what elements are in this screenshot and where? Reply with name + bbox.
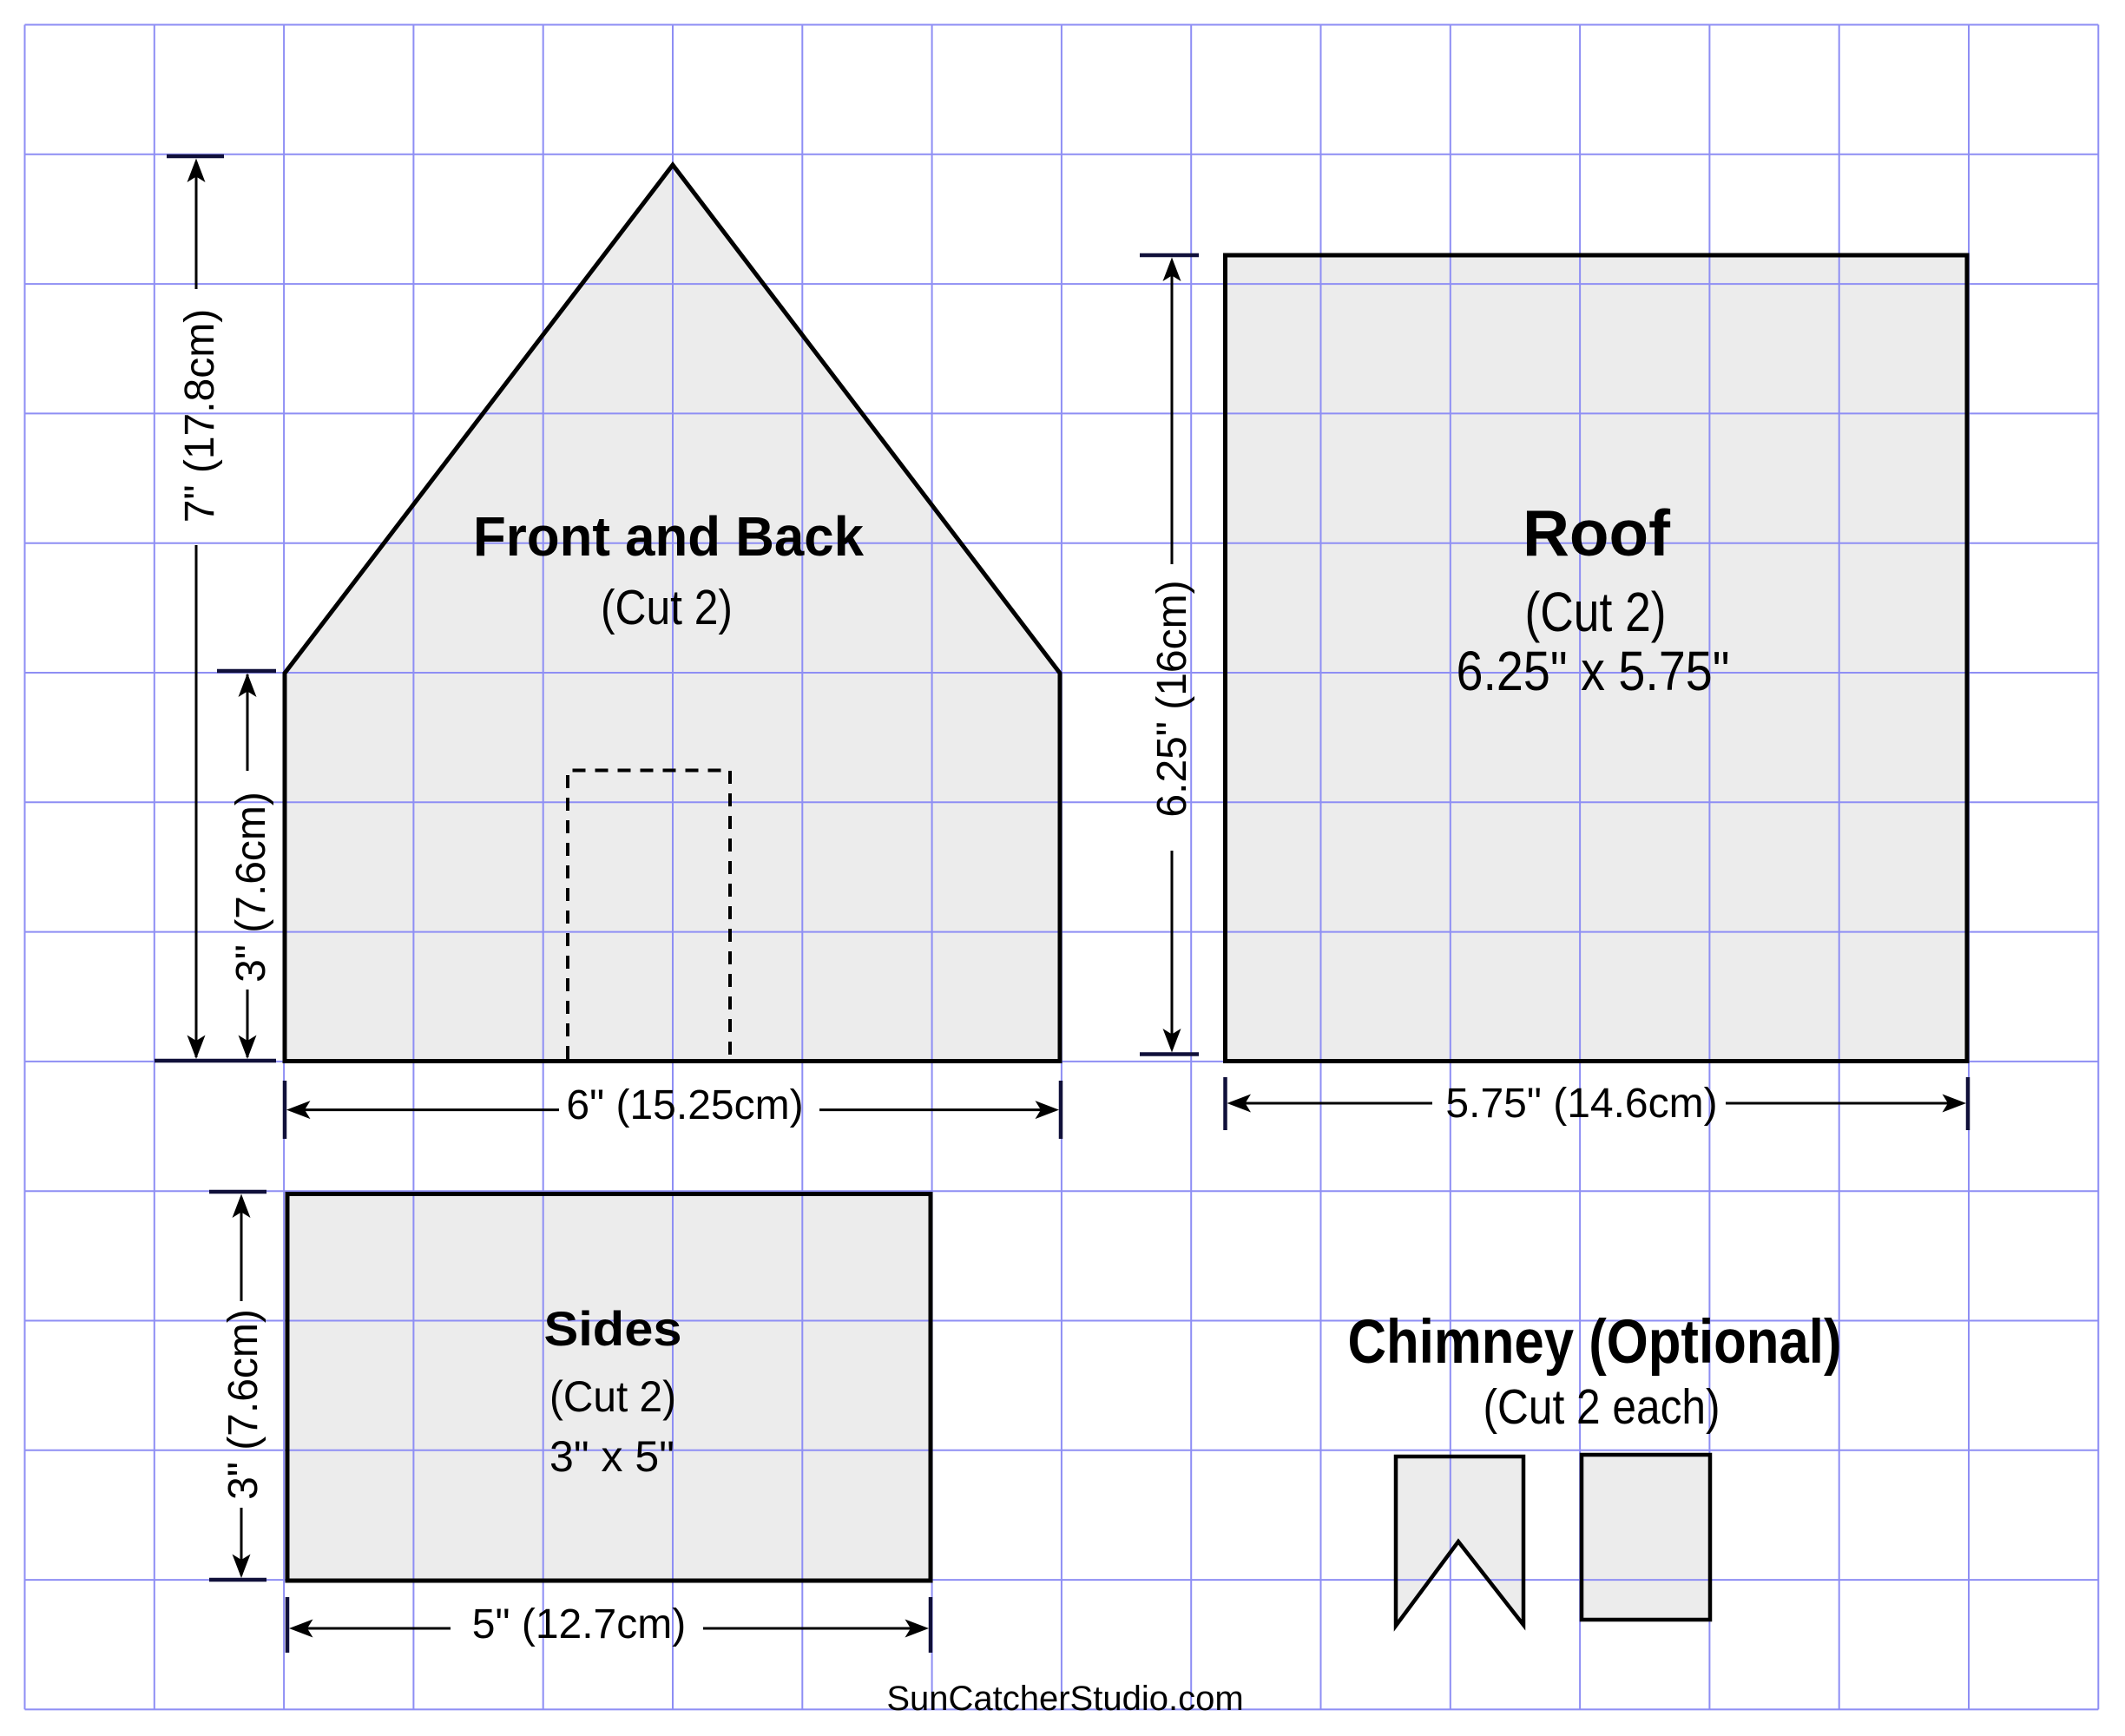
svg-text:5" (12.7cm): 5" (12.7cm): [472, 1601, 686, 1647]
svg-text:5.75" (14.6cm): 5.75" (14.6cm): [1445, 1081, 1717, 1127]
svg-text:Roof: Roof: [1523, 496, 1671, 569]
svg-text:6" (15.25cm): 6" (15.25cm): [566, 1082, 803, 1128]
svg-text:3" (7.6cm): 3" (7.6cm): [220, 1309, 266, 1500]
svg-text:(Cut 2): (Cut 2): [601, 580, 733, 635]
svg-text:(Cut 2): (Cut 2): [1525, 581, 1667, 643]
svg-text:Chimney (Optional): Chimney (Optional): [1348, 1308, 1842, 1377]
svg-text:(Cut 2 each): (Cut 2 each): [1484, 1379, 1720, 1435]
svg-text:Sides: Sides: [544, 1301, 682, 1356]
svg-text:(Cut 2): (Cut 2): [549, 1372, 676, 1421]
svg-text:SunCatcherStudio.com: SunCatcherStudio.com: [886, 1680, 1243, 1718]
svg-text:7" (17.8cm): 7" (17.8cm): [177, 309, 223, 523]
svg-text:Front and Back: Front and Back: [473, 505, 864, 568]
svg-text:3" (7.6cm): 3" (7.6cm): [228, 792, 274, 983]
svg-text:3" x 5": 3" x 5": [549, 1432, 674, 1481]
svg-text:6.25" (16cm): 6.25" (16cm): [1149, 580, 1195, 817]
svg-text:6.25" x 5.75": 6.25" x 5.75": [1457, 640, 1730, 702]
